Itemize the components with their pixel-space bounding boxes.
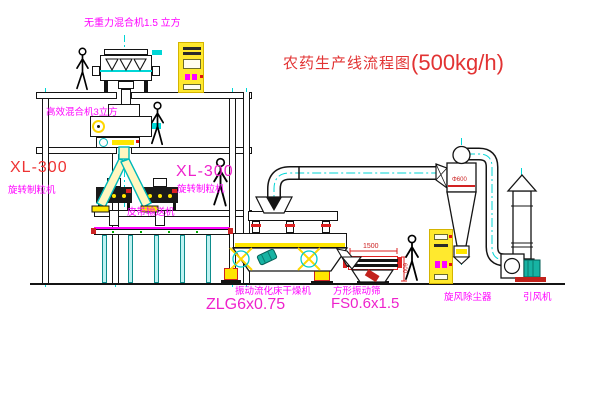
dryer-discharge-chute <box>337 249 361 269</box>
label-xl300-center: XL-300 <box>176 164 234 180</box>
exhaust-stack <box>508 175 536 264</box>
label-gravity-mixer: 无重力混合机1.5 立方 <box>84 19 181 29</box>
person-figure <box>77 48 88 89</box>
dryer-inlet-hood <box>256 197 292 213</box>
drawing-title: 农药生产线流程图(500kg/h) <box>283 50 504 76</box>
label-fan: 引风机 <box>523 293 552 303</box>
flow-marker-icon <box>298 248 320 270</box>
vibrating-screen-lower <box>352 269 393 282</box>
process-flow-drawing: 农药生产线流程图(500kg/h) 无重力混合机1.5 立方 高效混合机3立方 … <box>0 0 600 403</box>
label-cyclone: 旋风除尘器 <box>444 293 492 303</box>
dimension-600: 600 <box>401 263 407 273</box>
exhaust-duct <box>274 166 438 209</box>
y-chute <box>92 147 158 212</box>
label-granulator-center: 旋转制粒机 <box>177 185 225 195</box>
dimension-1500: 1500 <box>363 243 379 250</box>
person-figure <box>152 102 163 144</box>
flow-marker-icon <box>230 248 252 270</box>
label-granulator-left: 旋转制粒机 <box>8 186 56 196</box>
induced-draft-fan <box>501 254 546 282</box>
label-screen-model: FS0.6x1.5 <box>331 296 399 311</box>
label-dryer-model: ZLG6x0.75 <box>206 297 285 313</box>
person-figure <box>406 235 418 280</box>
cyclone-separator <box>436 147 476 265</box>
fan-base <box>515 277 546 282</box>
label-xl300-left: XL-300 <box>10 160 68 176</box>
label-efficient-mixer: 高效混合机3立方 <box>46 108 118 118</box>
dimension-cyclone-dia: Φ600 <box>452 177 467 183</box>
label-belt-conveyor: 皮带输送机 <box>127 208 175 218</box>
fan-motor <box>524 260 540 277</box>
dryer-lower-chamber <box>230 248 347 271</box>
title-text: 农药生产线流程图 <box>283 55 411 72</box>
mixer-funnels <box>106 59 146 70</box>
title-capacity: (500kg/h) <box>411 50 504 75</box>
